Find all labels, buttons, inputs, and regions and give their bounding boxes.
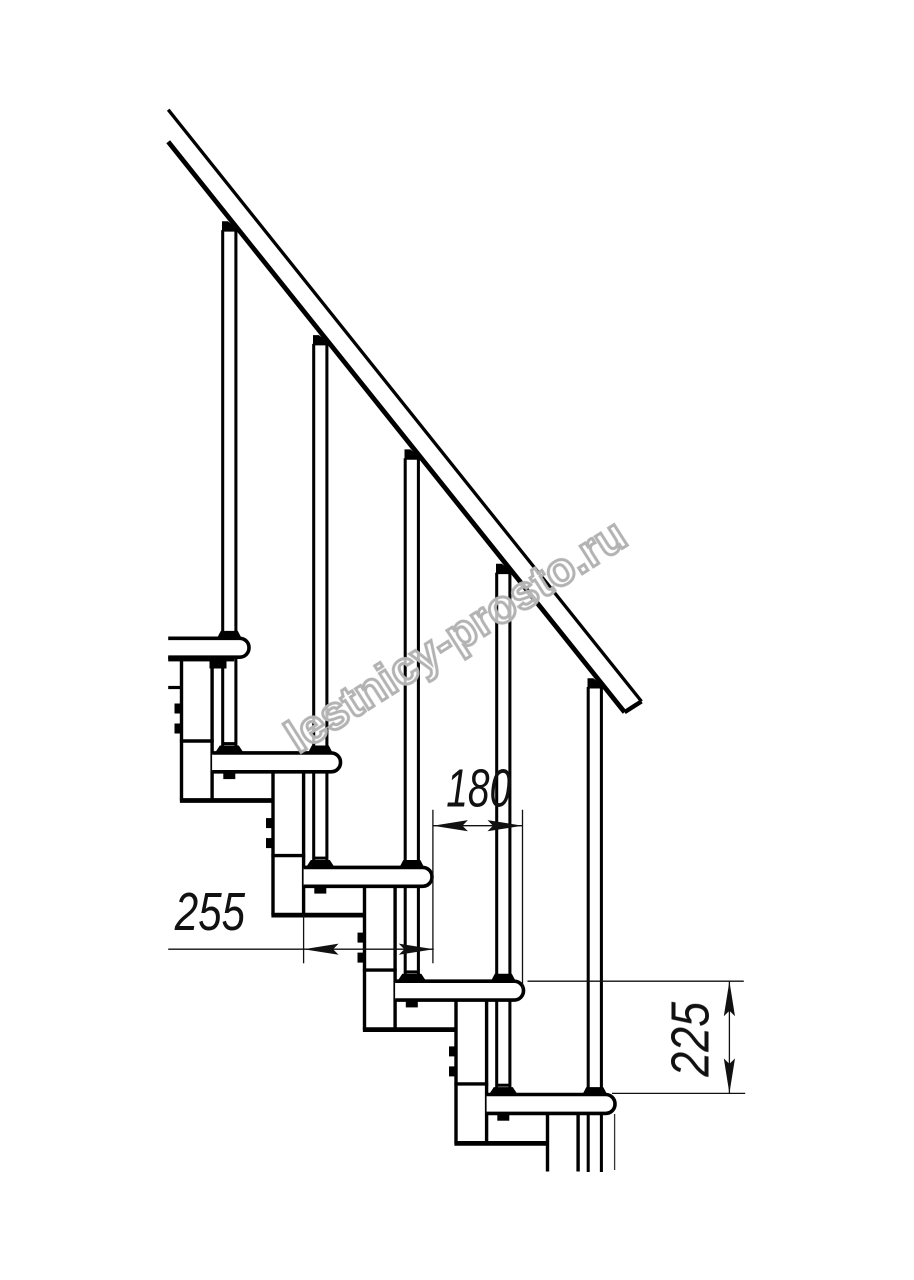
svg-text:255: 255: [174, 882, 246, 942]
svg-text:180: 180: [446, 757, 511, 818]
svg-text:225: 225: [660, 1002, 721, 1078]
